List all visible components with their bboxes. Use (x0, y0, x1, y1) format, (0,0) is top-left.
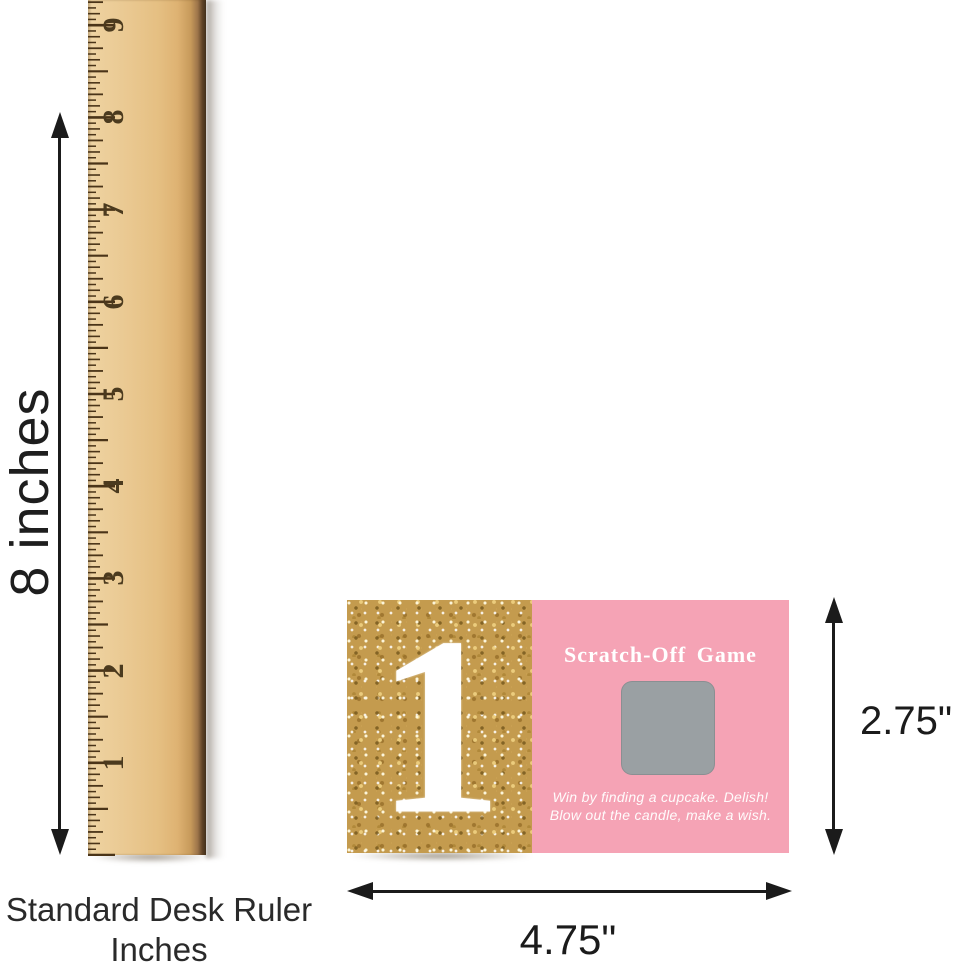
arrowhead-down-icon (51, 829, 69, 855)
card-instruction-line1: Win by finding a cupcake. Delish! (532, 788, 789, 806)
card-height-label: 2.75" (860, 699, 952, 744)
card-instructions: Win by finding a cupcake. Delish! Blow o… (532, 788, 789, 824)
ruler-number: 2 (96, 651, 132, 691)
card-pink-panel: Scratch-Off Game Win by finding a cupcak… (532, 600, 789, 853)
ruler-number: 5 (96, 374, 132, 414)
scratch-off-card: 1 Scratch-Off Game Win by finding a cupc… (347, 600, 789, 853)
card-big-number: 1 (376, 600, 504, 853)
product-dimensions-illustration: 123456789 8 inches Standard Desk Ruler I… (0, 0, 972, 970)
arrowhead-left-icon (347, 882, 373, 900)
card-title: Scratch-Off Game (532, 642, 789, 668)
ruler-caption-line1: Standard Desk Ruler (0, 890, 318, 930)
ruler-number: 3 (96, 558, 132, 598)
ruler-number: 6 (96, 282, 132, 322)
card-width-arrow-line (371, 890, 767, 893)
arrowhead-up-icon (825, 597, 843, 623)
ruler-number: 9 (96, 5, 132, 45)
card-instruction-line2: Blow out the candle, make a wish. (532, 806, 789, 824)
ruler-caption: Standard Desk Ruler Inches (0, 890, 318, 970)
ruler-number: 7 (96, 190, 132, 230)
card-height-arrow-line (832, 621, 835, 831)
ruler-height-label: 8 inches (0, 387, 61, 596)
arrowhead-up-icon (51, 112, 69, 138)
card-gold-glitter-panel: 1 (347, 600, 532, 853)
arrowhead-down-icon (825, 829, 843, 855)
ruler-number: 8 (96, 97, 132, 137)
ruler-caption-line2: Inches (0, 930, 318, 970)
card-width-label: 4.75" (520, 916, 617, 964)
scratch-area (621, 681, 715, 775)
ruler-drop-shadow (206, 0, 224, 858)
ruler-number: 1 (96, 743, 132, 783)
ruler-number: 4 (96, 466, 132, 506)
arrowhead-right-icon (766, 882, 792, 900)
